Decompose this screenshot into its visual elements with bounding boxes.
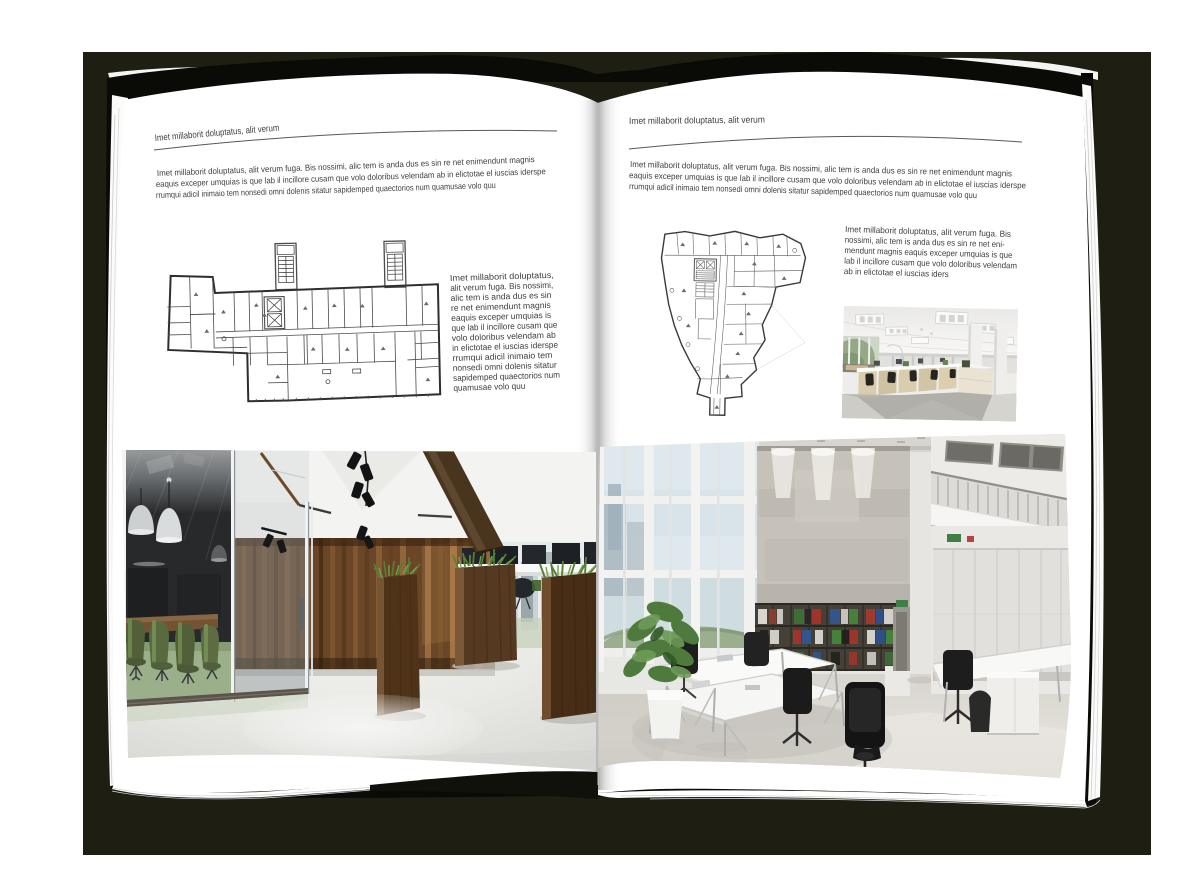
svg-text:Imet millaborit doluptatus, al: Imet millaborit doluptatus, alit verum bbox=[629, 115, 765, 126]
